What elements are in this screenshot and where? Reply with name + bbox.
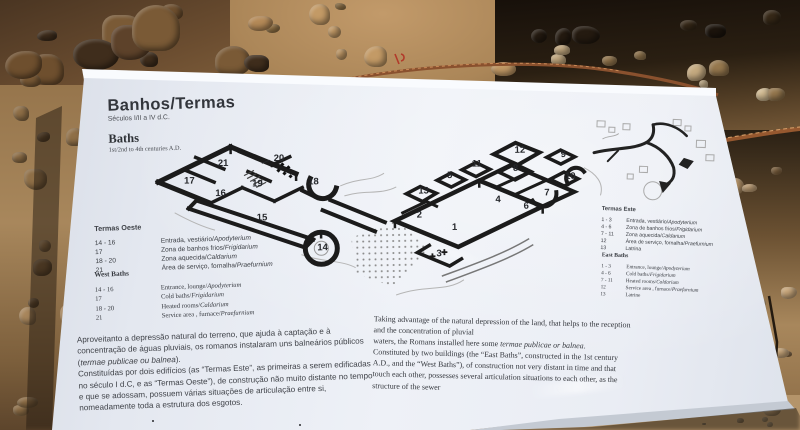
plan-room-number: 4 — [495, 194, 501, 205]
inset-locator-map — [586, 103, 734, 208]
red-graffiti-mark — [395, 54, 404, 64]
plan-room-number: 2 — [417, 210, 422, 221]
plan-room-number: 16 — [215, 188, 226, 199]
plan-room-number: 20 — [274, 153, 285, 164]
plan-room-number: 21 — [218, 158, 229, 169]
paragraph-portuguese: Aproveitanto a depressão natural do terr… — [77, 324, 394, 415]
plan-room-number: 13 — [418, 185, 429, 196]
plan-room-number: 17 — [184, 175, 195, 186]
legend-east-english: East Baths 1 - 3Entrance, lounge/Apodyte… — [600, 252, 699, 301]
plan-room-number: 5 — [447, 170, 453, 181]
photo-of-archaeological-site-sign: Banhos/Termas Séculos I/II a IV d.C. Bat… — [0, 0, 800, 430]
plan-room-number: 1 — [452, 222, 458, 233]
plan-room-number: 6 — [524, 201, 529, 212]
plan-east-building — [394, 142, 586, 267]
legend-east-portuguese: Termas Este 1 - 3Entrada, vestiário/Apod… — [600, 206, 714, 256]
paragraph-english: Taking advantage of the natural depressi… — [372, 313, 686, 398]
plan-room-number: 19 — [252, 178, 263, 189]
legend-west-english: West Baths 14 - 16Entrance, lounge/Apody… — [94, 265, 254, 323]
speck — [152, 420, 154, 422]
inset-roads — [593, 121, 687, 185]
speck — [299, 424, 301, 426]
plan-room-number: 3 — [436, 248, 441, 259]
plan-room-number: 8 — [513, 163, 518, 174]
legend-label: Latrine — [625, 292, 640, 300]
plan-room-number: 18 — [308, 176, 319, 187]
plan-room-number: 12 — [515, 145, 526, 156]
plan-room-number: 11 — [472, 158, 483, 169]
legend-range: 13 — [600, 291, 625, 299]
plan-room-number: 9 — [561, 149, 566, 160]
plan-room-number: 14 — [317, 242, 328, 253]
inset-blobs — [659, 157, 694, 194]
rope-right — [714, 129, 800, 142]
title-portuguese: Banhos/Termas — [107, 93, 235, 115]
plan-room-number: 7 — [544, 187, 549, 198]
plan-connector — [322, 199, 385, 232]
plan-room-number: 10 — [565, 171, 576, 182]
